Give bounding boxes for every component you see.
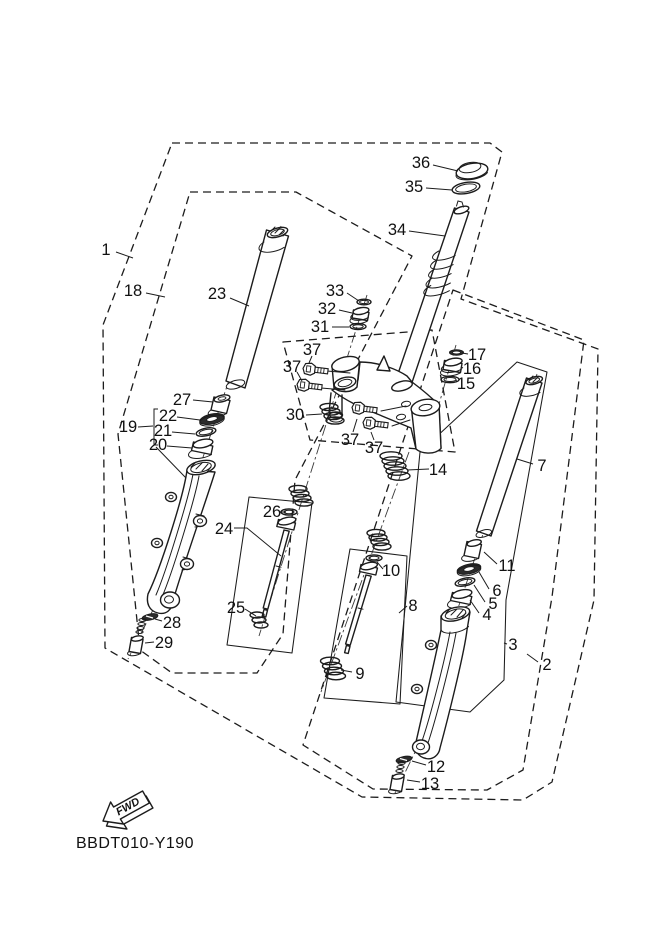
- part-leader-2: [527, 654, 538, 662]
- part-label-28: 28: [163, 614, 181, 632]
- part-label-12: 12: [427, 758, 445, 776]
- part-label-10: 10: [382, 562, 400, 580]
- part-label-15: 15: [457, 375, 475, 393]
- part-leader-14: [407, 469, 429, 470]
- cap-36: [455, 161, 489, 181]
- damper-rod-8: [345, 561, 378, 654]
- bolt-13: [389, 762, 406, 794]
- damper-rod-24: [262, 516, 296, 617]
- drawing-code: BBDT010-Y190: [76, 835, 194, 852]
- left-outer-tube: [147, 458, 216, 614]
- part-label-14: 14: [429, 461, 447, 479]
- part-label-37: 37: [365, 439, 383, 457]
- bolt-29: [128, 619, 147, 656]
- right-outer-tube-3: [412, 604, 472, 759]
- part-label-37: 37: [303, 341, 321, 359]
- oil-seal-22: [199, 412, 226, 428]
- part-leader-4: [470, 600, 479, 613]
- part-labels: 1182336353433323137373037371716151427192…: [101, 154, 551, 793]
- part-leader-36: [433, 165, 458, 171]
- part-label-13: 13: [421, 775, 439, 793]
- part-label-37: 37: [341, 431, 359, 449]
- group-outlines: [103, 143, 598, 800]
- part-leader-30: [306, 414, 322, 415]
- part-label-2: 2: [542, 656, 551, 674]
- bushing-4: [447, 588, 472, 608]
- part-leader-6: [479, 572, 489, 589]
- part-leader-12: [412, 761, 426, 765]
- ring-21: [195, 426, 216, 438]
- part-label-34: 34: [388, 221, 406, 239]
- part-label-20: 20: [149, 436, 167, 454]
- part-label-25: 25: [227, 599, 245, 617]
- part-leader-11: [484, 552, 497, 564]
- part-label-11: 11: [498, 557, 515, 575]
- cap-32: [350, 306, 369, 323]
- oil-seal-6: [456, 562, 481, 578]
- fwd-arrow: FWD: [103, 791, 153, 829]
- part-label-31: 31: [311, 318, 329, 336]
- part-leader-21: [172, 432, 195, 434]
- part-label-1: 1: [101, 241, 110, 259]
- ring-33: [357, 299, 371, 305]
- part-label-37: 37: [283, 358, 301, 376]
- washer-28: [142, 612, 159, 621]
- inner-tube-23: [225, 225, 289, 391]
- ring-10: [366, 555, 382, 561]
- part-leader-35: [426, 188, 452, 190]
- part-leader-8: [399, 606, 407, 613]
- part-leader-1: [116, 252, 133, 258]
- part-label-29: 29: [155, 634, 173, 652]
- part-leader-33: [347, 293, 359, 301]
- part-label-32: 32: [318, 300, 336, 318]
- part-leader-32: [339, 310, 352, 313]
- left-seal-stack: [188, 394, 230, 459]
- part-leader-18: [146, 293, 165, 297]
- part-leader-22: [177, 417, 200, 420]
- part-label-26: 26: [263, 503, 281, 521]
- part-leader-29: [145, 642, 154, 643]
- front-fork-exploded-diagram: 1182336353433323137373037371716151427192…: [0, 0, 661, 935]
- part-label-30: 30: [286, 406, 304, 424]
- ring-35: [451, 180, 480, 196]
- cap-16: [441, 357, 463, 376]
- part-leader-19: [138, 426, 153, 427]
- part-leader-34: [409, 231, 445, 236]
- part-leader-23: [230, 298, 249, 306]
- right-seal-stack: [447, 539, 481, 609]
- part-label-7: 7: [537, 457, 546, 475]
- part-label-9: 9: [355, 665, 364, 683]
- bushing-20: [188, 438, 213, 459]
- part-label-24: 24: [215, 520, 233, 538]
- left-axle-boss: [161, 592, 180, 608]
- parts-diagram-page: 1182336353433323137373037371716151427192…: [0, 0, 661, 935]
- right-axle-boss: [413, 740, 430, 754]
- part-leader-20: [167, 446, 192, 448]
- part-label-18: 18: [124, 282, 142, 300]
- ring-17: [450, 350, 464, 355]
- inner-tube-7: [475, 375, 543, 539]
- part-leader-27: [193, 400, 213, 402]
- part-label-3: 3: [508, 636, 517, 654]
- part-label-33: 33: [326, 282, 344, 300]
- part-label-23: 23: [208, 285, 226, 303]
- part-label-19: 19: [119, 418, 137, 436]
- part-label-36: 36: [412, 154, 430, 172]
- part-label-8: 8: [408, 597, 417, 615]
- part-leader-13: [407, 780, 420, 782]
- part-label-4: 4: [482, 606, 491, 624]
- part-leader-28: [155, 619, 162, 621]
- ring-5: [454, 576, 475, 588]
- spacer-11: [462, 539, 482, 562]
- group-1-outline: [103, 143, 598, 800]
- part-leader-5: [474, 585, 485, 602]
- ring-31: [350, 324, 366, 330]
- spring-9: [321, 657, 346, 680]
- rebound-spring-upper-right: [367, 529, 391, 550]
- part-label-35: 35: [405, 178, 423, 196]
